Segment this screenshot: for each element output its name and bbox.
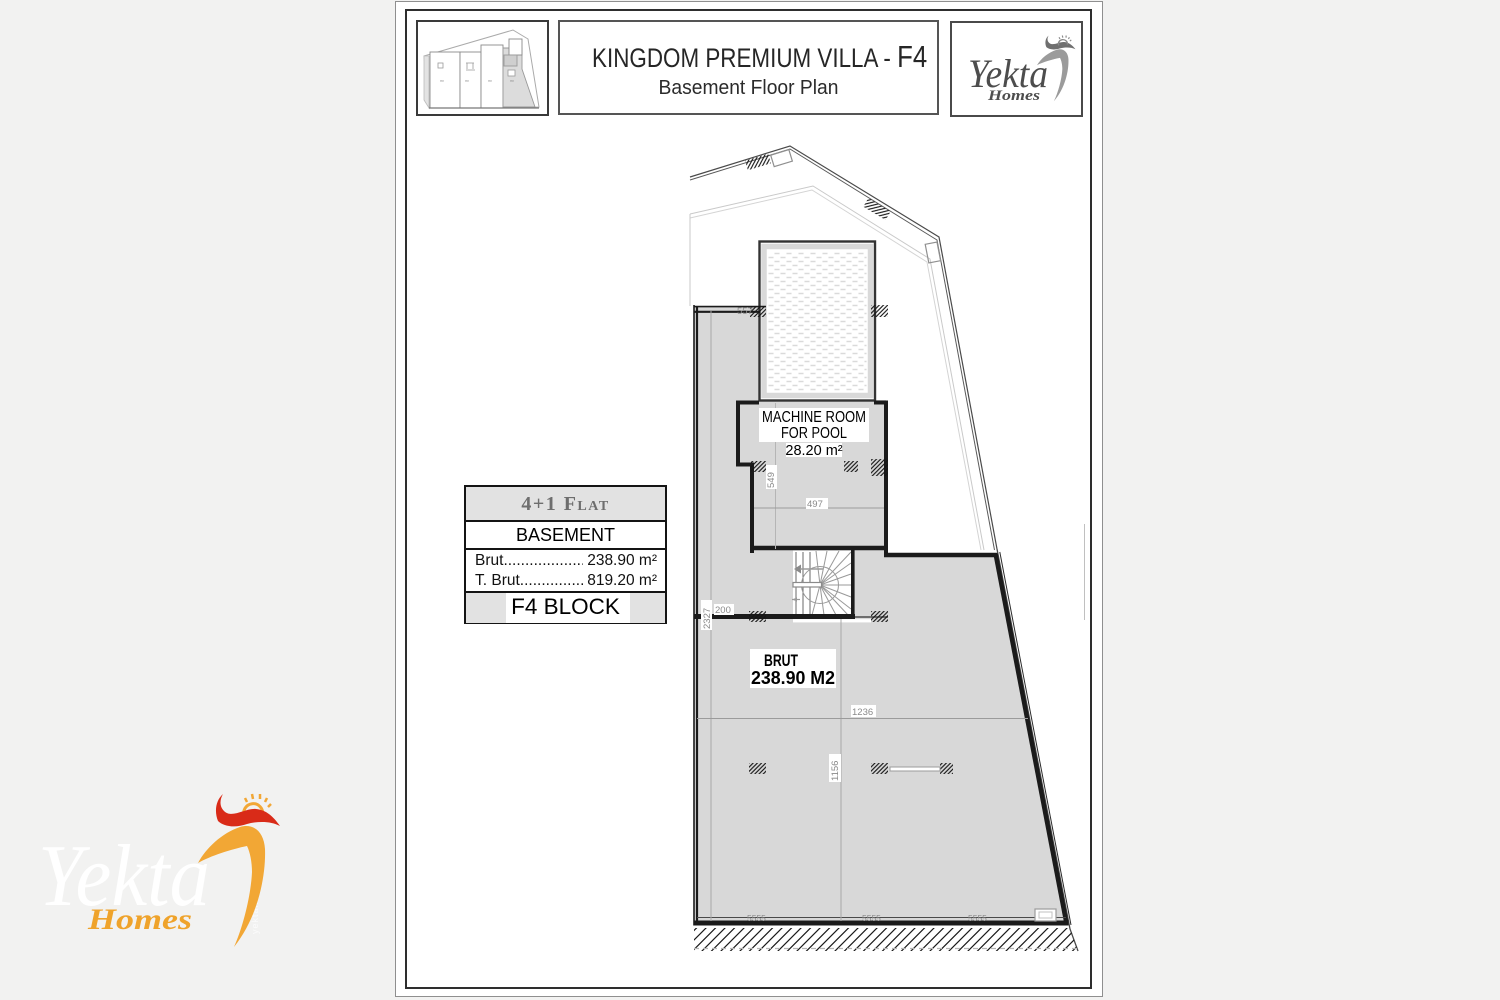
svg-text:238.90 M2: 238.90 M2	[751, 668, 835, 688]
svg-text:5555: 5555	[747, 913, 766, 923]
svg-text:Homes: Homes	[87, 903, 192, 936]
svg-text:549: 549	[766, 472, 777, 488]
svg-text:1236: 1236	[852, 707, 873, 718]
svg-text:5555: 5555	[968, 913, 987, 923]
svg-text:1156: 1156	[830, 761, 841, 781]
svg-text:2327: 2327	[702, 608, 713, 629]
svg-text:5555: 5555	[862, 913, 881, 923]
svg-text:557: 557	[737, 306, 753, 317]
svg-text:MACHINE ROOM: MACHINE ROOM	[762, 409, 866, 426]
svg-text:FOR POOL: FOR POOL	[781, 425, 847, 442]
svg-text:28.20 m²: 28.20 m²	[785, 443, 842, 459]
svg-text:497: 497	[807, 499, 823, 510]
svg-text:200: 200	[715, 605, 731, 616]
